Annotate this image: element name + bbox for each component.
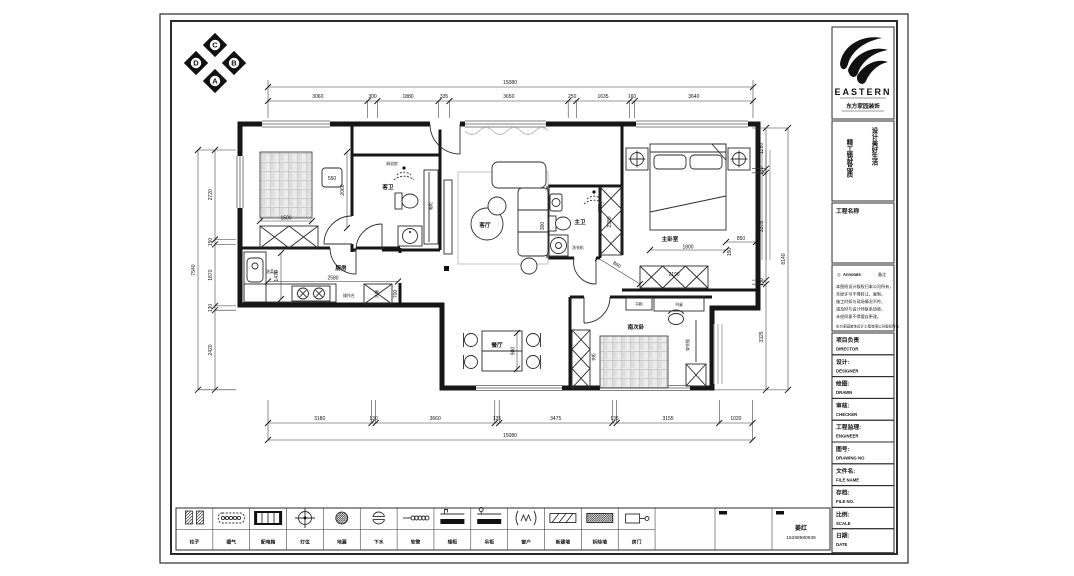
dim-bed1-w: 1500 [280, 216, 291, 222]
title-block: EASTERN 东方家园装饰 设计美好生活 精工铸就品质 工程名称 ◎ Anno… [832, 27, 899, 553]
notes-footer: 东方家园装饰设计工程有限公司版权所有 [836, 324, 899, 329]
dim-bottom-6: 3155 [662, 416, 673, 422]
dim-closet: 2380 [607, 216, 613, 227]
legend-label: 房门 [631, 539, 642, 546]
row-engineer-cn: 工程监理: [836, 423, 861, 431]
notes-header: Annotate [843, 272, 861, 277]
legend-label: 地漏 [337, 539, 347, 546]
counter-label: 操作台 [343, 293, 355, 298]
row-fileno-en: FILE NO. [836, 499, 854, 504]
ottoman [521, 258, 537, 274]
lamp-icon [295, 508, 315, 528]
washer-label: 洗衣机 [572, 245, 584, 250]
shower-guest [394, 166, 414, 180]
dim-kitchen-w: 2580 [327, 276, 338, 282]
dimensions-bottom: 3180 130 3660 135 3475 135 3155 1020 150… [265, 400, 756, 443]
dim-bottom-5: 135 [610, 416, 619, 422]
dim-fridge: 700 [393, 290, 399, 299]
dim-top-1: 300 [368, 94, 377, 100]
legend-label: 灯位 [300, 539, 310, 546]
dim-top-4: 3650 [503, 94, 514, 100]
dim-bed2-w: 1800 [682, 245, 693, 251]
project-name-label: 工程名称 [836, 207, 859, 215]
window-icon [516, 511, 536, 525]
legend-label: 软管 [411, 539, 421, 546]
stove [292, 286, 330, 301]
row-drawingno-en: DRAWING NO [836, 456, 865, 461]
toilet-guest [395, 193, 418, 209]
legend-label: 柱子 [190, 539, 200, 546]
compass-rose: C D B A [184, 33, 246, 93]
row-engineer-en: ENGINEER [836, 434, 859, 439]
row-checker-en: CHECKER [836, 412, 858, 417]
kitchen-counter-bottom [244, 284, 336, 302]
hanging-cabinet-icon [477, 508, 501, 525]
radiator-icon [218, 513, 244, 523]
dim-top-0: 3060 [312, 94, 323, 100]
dim-bottom-7: 1020 [730, 416, 741, 422]
south-bedroom-label: 南次卧 [628, 323, 645, 331]
dim-hall-diag: 860 [611, 260, 621, 270]
wardrobe-label: 衣柜 [591, 353, 596, 361]
living-room: 客厅 [444, 162, 548, 274]
dim-right-2: 3375 [759, 221, 765, 232]
row-fileno-cn: 存档: [836, 489, 850, 497]
row-director-cn: 项目负责 [836, 336, 859, 344]
tv-cabinet [444, 180, 452, 254]
washing-machine [549, 235, 568, 256]
dim-bottom-1: 130 [369, 416, 378, 422]
mirror-label: 穿衣镜 [685, 339, 690, 351]
hose-icon [403, 516, 429, 520]
dim-dining: 900 [511, 347, 517, 356]
legend-label: 吊柜 [484, 539, 494, 546]
row-date-cn: 日期: [836, 532, 850, 540]
bookcase-label: 书柜 [635, 302, 643, 307]
master-bath-label: 主卫 [574, 218, 586, 226]
wardrobe-south [572, 330, 590, 388]
eastern-logo-icon [840, 37, 888, 84]
nightstand-right [728, 148, 750, 170]
nightstand-left [626, 148, 648, 170]
dim-wardrobe: 2190 [668, 272, 679, 278]
row-drawn-en: DRAWN [836, 390, 852, 395]
guest-bath-label: 客卫 [381, 183, 394, 191]
row-filename-en: FILE NAME [836, 477, 859, 482]
slogan-box [832, 121, 894, 201]
side-table [488, 197, 506, 215]
basin-master [550, 194, 562, 211]
bed-south [600, 336, 668, 388]
copyright-icon: ◎ [837, 272, 841, 277]
ac-unit [686, 364, 706, 386]
low-cabinet-icon [440, 510, 464, 525]
shower-room-label: 淋浴房 [386, 161, 398, 166]
dim-right-total: 8140 [781, 253, 787, 264]
wardrobe-north [260, 226, 318, 248]
row-checker-cn: 审核: [836, 401, 850, 409]
hall-diagonal-dim: 860 [595, 255, 643, 287]
dim-top-8: 3640 [688, 94, 699, 100]
door-icon [626, 514, 649, 523]
slogan-left: 精工铸就品质 [846, 138, 853, 179]
floor-drain-icon [336, 512, 348, 524]
master-bedroom: 主卧室 1800 150 850 2190 [626, 144, 759, 288]
master-bathroom: 主卫 洗衣机 620 300 [540, 190, 604, 256]
compass-bottom: A [203, 69, 227, 93]
legend-label: 矮柜 [448, 539, 458, 546]
row-scale-cn: 比例: [836, 510, 850, 518]
brand-name: EASTERN [834, 87, 891, 97]
dim-kitchen-h: 1470 [274, 270, 280, 281]
compass-letter-b: B [231, 59, 237, 68]
toilet-master [549, 216, 571, 231]
row-designer-cn: 设计: [836, 358, 850, 366]
legend-label: 暖气 [226, 539, 236, 546]
row-filename-cn: 文件名: [836, 467, 855, 475]
compass-top: C [203, 33, 227, 57]
contact-phone: 15288980639 [786, 535, 816, 541]
slogan-right: 设计美好生活 [871, 126, 879, 167]
kitchen: 洗菜盆 操作台 冰箱 700 厨房 2580 1470 [244, 250, 401, 304]
note-line: 未经同意不得擅自更改。 [836, 313, 881, 319]
dim-bed2-side: 850 [737, 236, 746, 242]
dim-bottom-4: 3475 [550, 416, 561, 422]
column-icon [185, 511, 203, 524]
drain-icon [372, 512, 386, 524]
dim-right-3: 130 [759, 278, 765, 287]
dimensions-top: 15080 3060 300 1880 335 3650 250 1635 16… [265, 80, 756, 118]
master-bedroom-label: 主卧室 [662, 235, 679, 243]
dim-bottom-0: 3180 [314, 416, 325, 422]
dining-room: 餐厅 900 [464, 330, 541, 372]
distribution-box-icon [254, 511, 282, 525]
south-bedroom: 书柜 书桌 南次卧 衣柜 穿衣镜 [572, 297, 706, 388]
compass-letter-a: A [212, 77, 218, 86]
contact-name: 姜红 [795, 524, 807, 532]
row-drawn-cn: 绘图: [836, 380, 850, 388]
dining-label: 餐厅 [490, 341, 503, 349]
column-marker [444, 266, 449, 271]
note-line: 施工时如与现场情况不符， [836, 298, 885, 304]
row-drawingno-cn: 图号: [836, 445, 850, 453]
legend-bar: 柱子 暖气 配电箱 灯位 地漏 下水 软管 矮柜 吊柜 窗户 新建墙 拆除墙 房… [176, 508, 830, 551]
row-scale-en: SCALE [836, 521, 851, 526]
new-wall-icon [550, 514, 576, 523]
demolish-wall-icon [587, 514, 613, 523]
note-line: 未经许可不得转让、复制， [836, 291, 885, 297]
kitchen-sink [247, 258, 263, 282]
sheet-outer-border [160, 14, 908, 563]
guest-bathroom: 鞋柜 淋浴房 客卫 洗手台 [381, 161, 438, 251]
dim-top-6: 1635 [597, 94, 608, 100]
dim-right-0: 1280 [759, 143, 765, 154]
bed-master [650, 144, 726, 230]
entry-door [430, 120, 460, 154]
dim-bed2-gap: 150 [727, 248, 733, 257]
drawing-sheet: C D B A [0, 0, 1074, 576]
note-line: 本图纸设计版权归本公司所有， [836, 283, 893, 289]
legend-label: 配电箱 [261, 539, 276, 546]
dim-left-1: 150 [208, 238, 214, 247]
kitchen-label: 厨房 [335, 264, 347, 272]
dim-top-total: 15080 [503, 80, 517, 86]
dim-left-0: 2720 [208, 189, 214, 200]
basin-label: 洗手台 [383, 246, 395, 251]
northwest-room: 550 1500 2060 [257, 149, 350, 248]
hall-closet: 2380 [600, 187, 622, 255]
revision-mark [776, 511, 784, 515]
notes-header-cn: 备注 [878, 271, 886, 277]
dim-left-2: 1870 [208, 269, 214, 280]
basin-guest [398, 226, 422, 246]
bay-window-south [714, 324, 722, 384]
dimensions-left: 2720 150 1870 130 2420 7540 [191, 147, 236, 393]
dim-top-3: 335 [440, 94, 449, 100]
curtain-living [465, 128, 548, 135]
living-label: 客厅 [478, 221, 491, 229]
revision-mark [719, 511, 727, 515]
compass-right: B [222, 51, 246, 75]
legend-label: 新建墙 [556, 539, 571, 546]
dim-bottom-total: 15080 [503, 433, 517, 439]
desk-chair [668, 310, 684, 325]
dim-left-total: 7540 [191, 264, 197, 275]
legend-label: 窗户 [521, 539, 531, 546]
floor-plan: 550 1500 2060 洗菜盆 操作台 冰箱 700 厨房 2580 [236, 120, 771, 393]
compass-letter-d: D [193, 59, 199, 68]
desk-label: 书桌 [675, 302, 683, 307]
bed-north [260, 152, 312, 218]
dim-top-2: 1880 [402, 94, 413, 100]
dim-left-4: 2420 [208, 344, 214, 355]
dim-right-4: 3325 [759, 331, 765, 342]
dim-left-3: 130 [208, 304, 214, 313]
compass-letter-c: C [212, 41, 218, 50]
note-line: 请及时与设计师联系协商， [836, 306, 885, 312]
company-name: 东方家园装饰 [846, 102, 880, 110]
fridge-label: 冰箱 [374, 290, 379, 298]
legend-label: 下水 [374, 539, 384, 546]
row-designer-en: DESIGNER [836, 368, 859, 373]
shoe-cabinet-label: 鞋柜 [428, 202, 433, 210]
dim-top-7: 160 [628, 94, 637, 100]
dim-top-5: 250 [568, 94, 577, 100]
dim-bottom-3: 135 [493, 416, 502, 422]
row-director-en: DIRECTOR [836, 347, 859, 352]
dim-basin: 300 [540, 222, 546, 231]
floor-plan-drawing: C D B A [0, 0, 1074, 576]
legend-label: 拆除墙 [593, 539, 608, 546]
row-date-en: DATE [836, 542, 848, 547]
dim-right-1: 130 [759, 166, 765, 175]
dim-bottom-2: 3660 [430, 416, 441, 422]
dim-nightstand: 550 [328, 176, 337, 182]
dim-bed1-h: 2060 [340, 184, 346, 195]
compass-left: D [184, 51, 208, 75]
